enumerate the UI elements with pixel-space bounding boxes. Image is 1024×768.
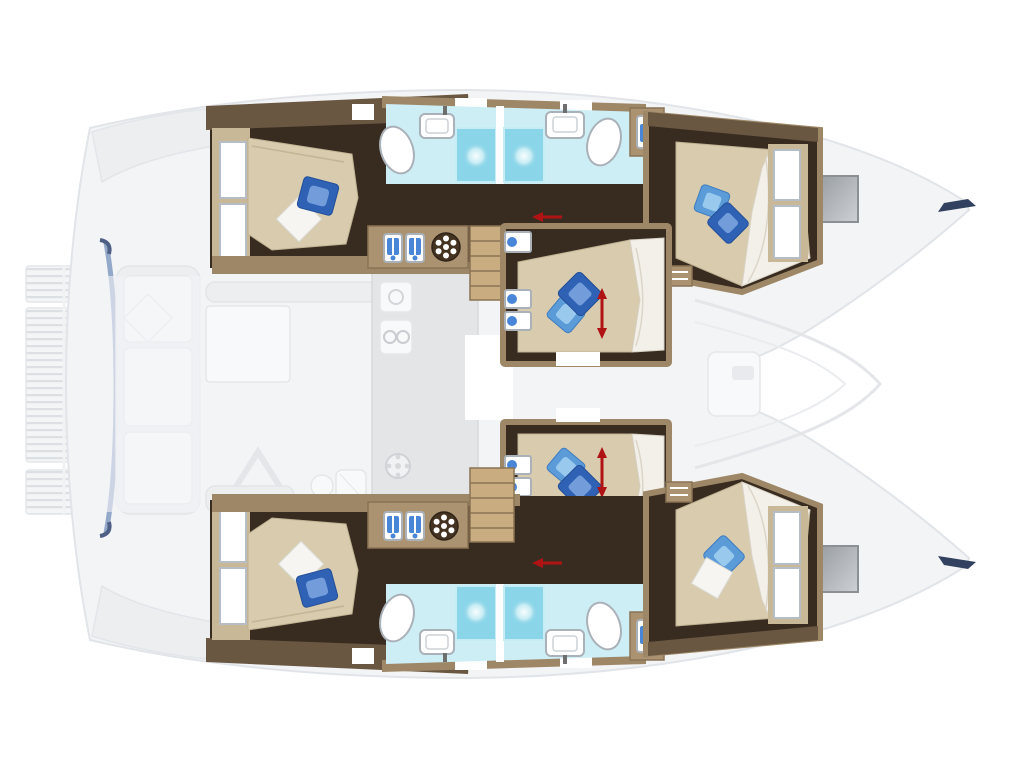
starboard-fore-cabin bbox=[646, 476, 820, 656]
shower-icon bbox=[456, 128, 496, 182]
foredeck-seat-faded bbox=[708, 352, 760, 416]
burner-icon bbox=[386, 454, 410, 478]
washer-locker-icon bbox=[384, 512, 402, 540]
hull-window bbox=[220, 510, 246, 562]
port-fore-cabin bbox=[646, 112, 820, 292]
port-vanity-band bbox=[368, 226, 468, 268]
mid-cabin-upper bbox=[503, 226, 669, 366]
shower-icon bbox=[504, 586, 544, 640]
ship-wheel-vent-icon bbox=[430, 512, 458, 540]
hull-window bbox=[220, 204, 246, 260]
cabin-door-gap bbox=[556, 352, 600, 366]
saloon-table bbox=[206, 306, 290, 382]
floorplan-canvas bbox=[0, 0, 1024, 768]
hull-window bbox=[220, 568, 246, 624]
hull-window bbox=[220, 142, 246, 198]
stairs-starboard-icon bbox=[470, 468, 514, 542]
cabin-door-gap bbox=[556, 408, 600, 422]
hull-window bbox=[774, 568, 800, 618]
washer-locker-icon bbox=[406, 234, 424, 262]
washer-locker-icon bbox=[384, 234, 402, 262]
ship-wheel-vent-icon bbox=[432, 233, 460, 261]
starboard-vanity-band bbox=[368, 502, 468, 548]
hull-window bbox=[774, 150, 800, 200]
shower-icon bbox=[504, 128, 544, 182]
washer-locker-icon bbox=[406, 512, 424, 540]
bow-hatch-starboard-icon bbox=[820, 546, 858, 592]
shower-icon bbox=[456, 586, 496, 640]
catamaran-floorplan bbox=[0, 0, 1024, 768]
bow-hatch-port-icon bbox=[820, 176, 858, 222]
vent-locker-icon bbox=[666, 482, 692, 502]
starboard-hull-interior bbox=[206, 468, 820, 674]
starboard-bathroom bbox=[374, 584, 664, 672]
hull-window bbox=[774, 512, 800, 564]
hull-window bbox=[774, 206, 800, 258]
port-bathroom bbox=[374, 96, 664, 184]
galley-sink-icon bbox=[380, 282, 412, 312]
